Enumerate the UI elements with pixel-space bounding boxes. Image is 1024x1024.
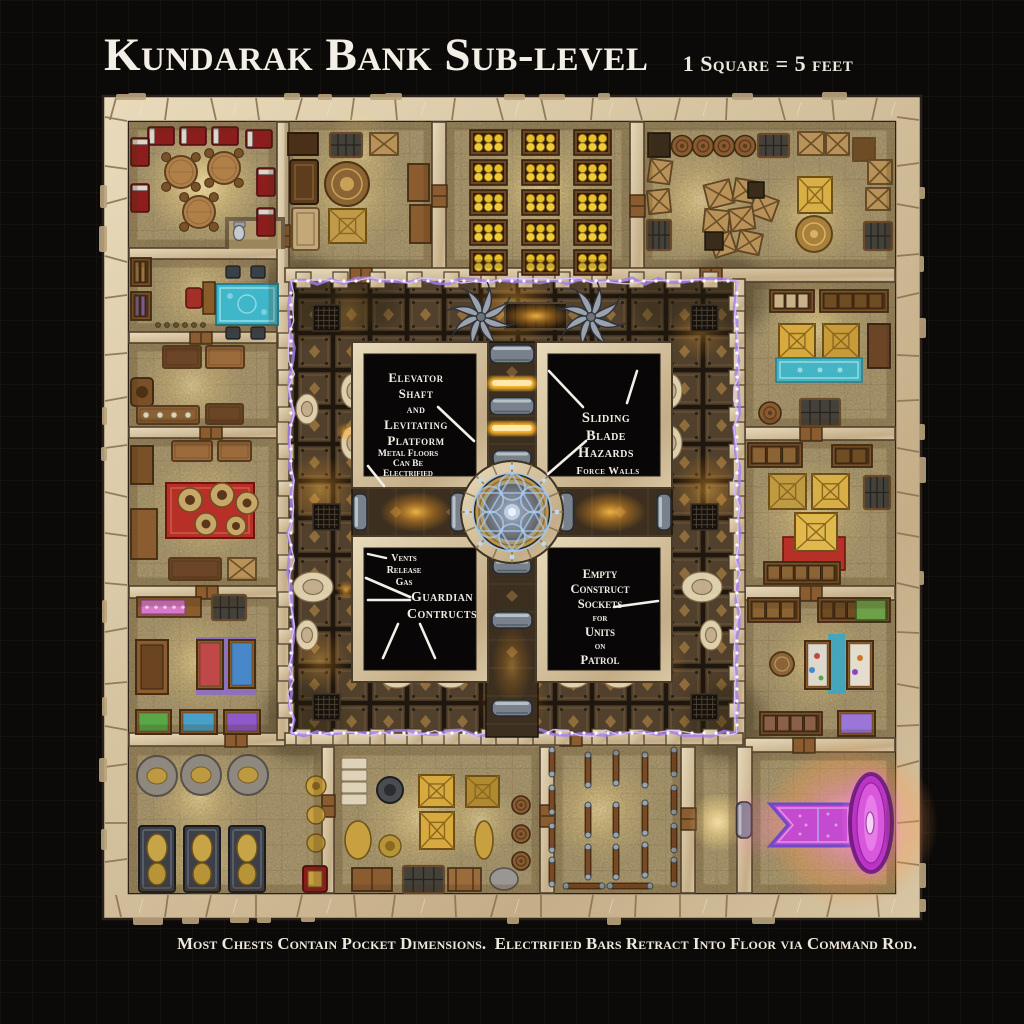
svg-text:Blade: Blade (586, 428, 626, 444)
svg-text:Levitating: Levitating (384, 417, 448, 432)
svg-text:on: on (595, 641, 606, 652)
svg-text:Kundarak Bank Sub-level: Kundarak Bank Sub-level (104, 29, 648, 81)
svg-text:Guardian: Guardian (411, 590, 473, 605)
svg-text:Shaft: Shaft (399, 386, 434, 401)
svg-text:Force Walls: Force Walls (576, 466, 639, 477)
svg-text:Electrified: Electrified (383, 469, 433, 479)
svg-text:Vents: Vents (391, 553, 417, 564)
svg-text:Contructs: Contructs (407, 607, 477, 622)
svg-text:Metal Floors: Metal Floors (378, 449, 438, 459)
svg-text:Most Chests Contain Pocket Dim: Most Chests Contain Pocket Dimensions. E… (177, 934, 917, 953)
svg-text:Patrol: Patrol (581, 653, 620, 667)
svg-text:Elevator: Elevator (388, 370, 443, 385)
svg-text:Units: Units (585, 625, 615, 639)
svg-text:Empty: Empty (583, 567, 618, 581)
svg-text:Sockets: Sockets (578, 597, 622, 611)
svg-text:Construct: Construct (570, 582, 629, 596)
svg-text:Can Be: Can Be (393, 459, 424, 469)
svg-text:Sliding: Sliding (582, 410, 630, 426)
svg-text:Hazards: Hazards (578, 445, 634, 461)
svg-text:Platform: Platform (387, 433, 444, 448)
svg-text:Release: Release (387, 565, 422, 576)
svg-text:1 Square = 5 feet: 1 Square = 5 feet (683, 51, 854, 76)
svg-text:for: for (593, 613, 609, 624)
svg-text:and: and (407, 404, 426, 416)
svg-text:Gas: Gas (396, 577, 413, 588)
